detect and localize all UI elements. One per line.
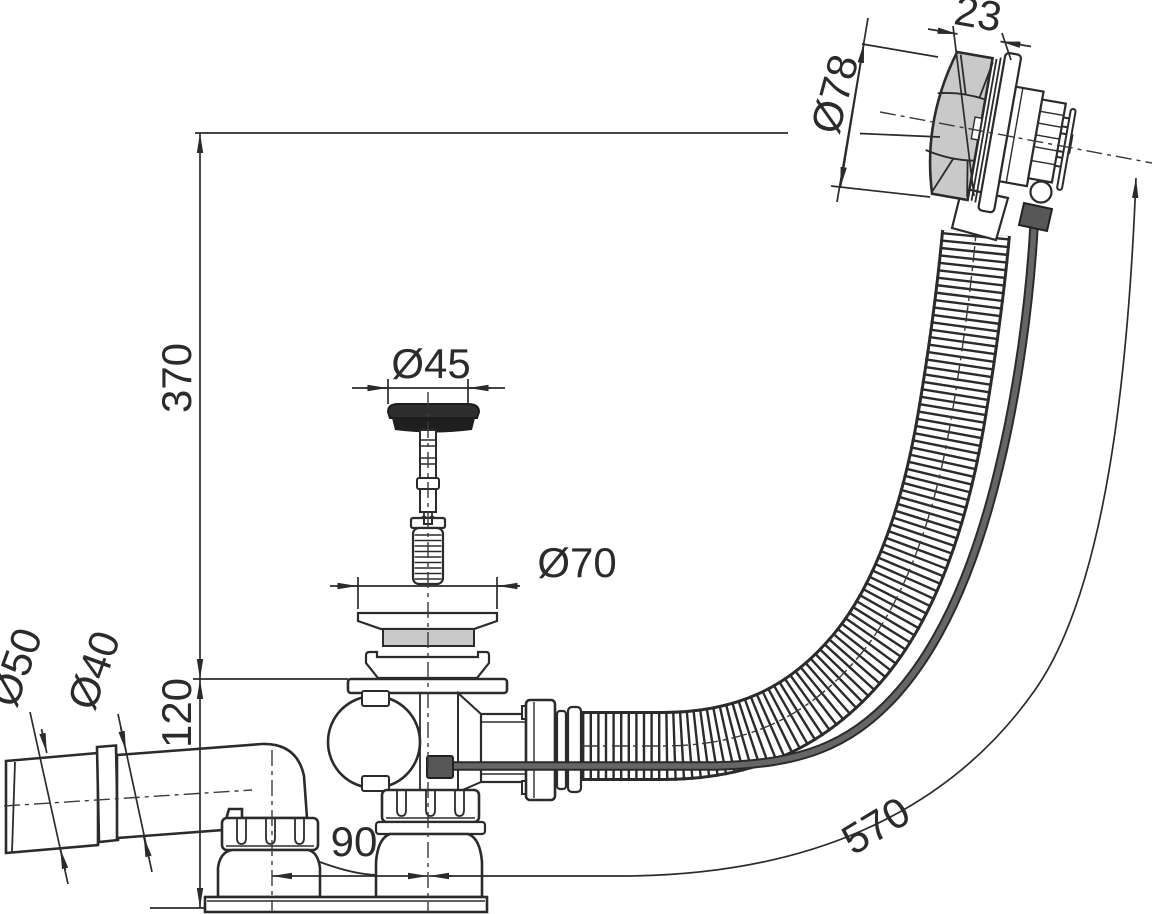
dim-label-outlet-small: Ø40 (58, 625, 129, 716)
drawing-canvas: 370 120 Ø45 Ø70 90 Ø50 Ø40 Ø78 23 570 (0, 0, 1157, 914)
dim-label-knob-diameter: Ø78 (802, 49, 868, 138)
cable-ball-joint (1031, 182, 1052, 203)
dim-label-hose-length: 570 (834, 787, 918, 863)
dim-label-height-370: 370 (153, 343, 200, 413)
cable-head-fitting (1019, 203, 1052, 231)
dim-label-outlet-offset: 90 (331, 818, 378, 865)
technical-drawing: 370 120 Ø45 Ø70 90 Ø50 Ø40 Ø78 23 570 (0, 0, 1157, 914)
drain-plug (388, 404, 479, 584)
cable-end-fitting (427, 756, 453, 778)
dim-label-outlet-large: Ø50 (0, 622, 51, 713)
dim-label-plug-diameter: Ø45 (391, 340, 470, 387)
dim-label-height-120: 120 (153, 678, 200, 748)
side-outlet-elbow (6, 744, 376, 897)
dim-label-knob-width: 23 (951, 0, 1005, 41)
dim-label-flange-diameter: Ø70 (537, 539, 616, 586)
